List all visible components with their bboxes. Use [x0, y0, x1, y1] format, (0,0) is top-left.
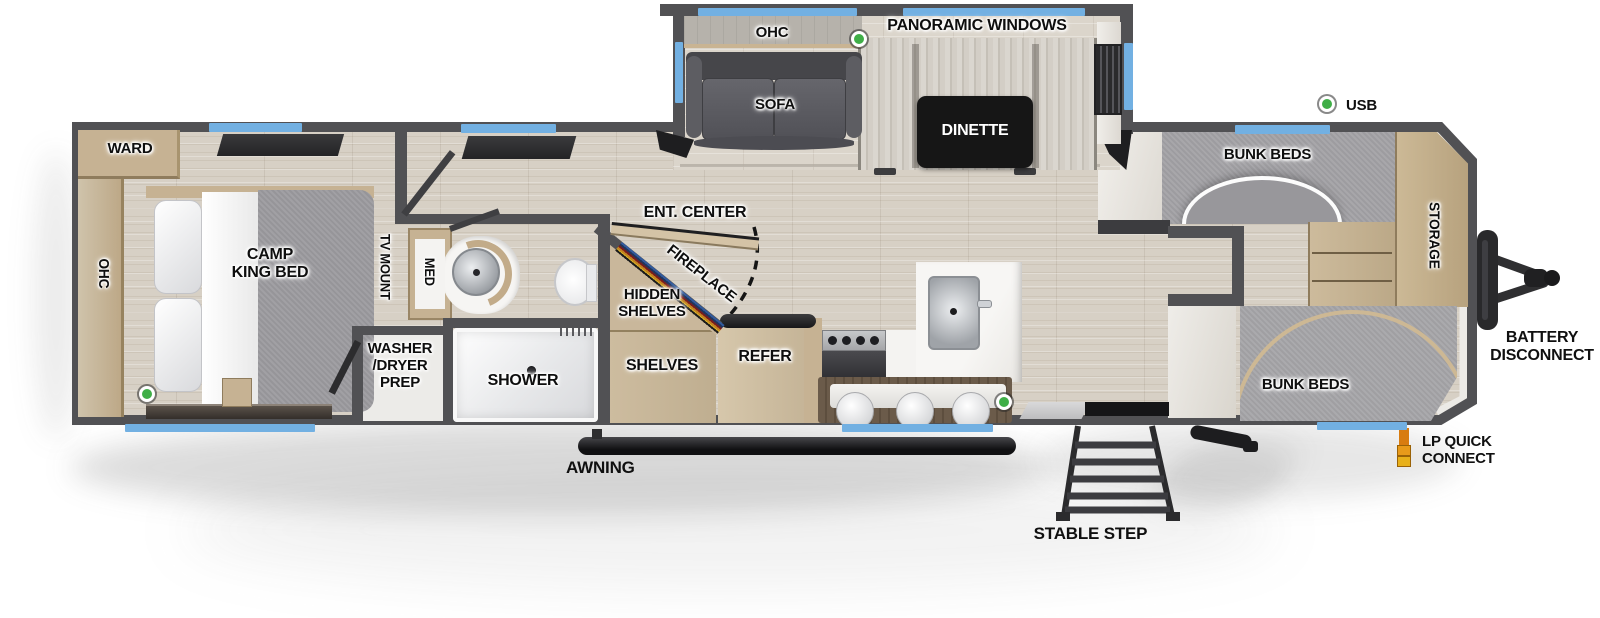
dresser-drawer-line: [1312, 252, 1392, 254]
dresser-drawer-line: [1312, 280, 1392, 282]
label-ohc-bedroom-text: OHC: [94, 258, 111, 288]
shower-head-icon: [560, 328, 592, 336]
nightstand: [222, 378, 252, 407]
label-ohc-bedroom: OHC: [84, 240, 120, 306]
front-closet-edge: [1098, 220, 1170, 234]
bunk-lower-wall: [1168, 306, 1236, 418]
hitch-a-frame: [1477, 230, 1560, 330]
window: [1317, 422, 1407, 430]
label-stable-step: STABLE STEP: [1018, 524, 1163, 543]
awning-bracket: [592, 429, 602, 439]
label-refer: REFER: [715, 348, 815, 366]
window: [675, 42, 683, 103]
label-shelves: SHELVES: [612, 357, 712, 375]
window: [842, 424, 993, 432]
bedroom-partition-wall: [395, 127, 407, 218]
label-shower: SHOWER: [478, 372, 568, 390]
stabilizer-foot-pad: [1243, 441, 1258, 452]
refrigerator-top-trim: [720, 314, 816, 328]
shadow-left-wall: [34, 150, 78, 440]
entry-threshold: [1085, 402, 1169, 416]
label-dinette: DINETTE: [920, 122, 1030, 140]
label-bunk-beds-top: BUNK BEDS: [1205, 147, 1330, 164]
refrigerator: [718, 326, 816, 423]
label-battery-disconnect: BATTERY DISCONNECT: [1478, 329, 1600, 365]
sink-drain: [473, 269, 480, 276]
lp-quick-connect-icon-tip: [1397, 456, 1411, 467]
sofa-arm: [846, 56, 862, 138]
label-storage-text: STORAGE: [1425, 202, 1442, 269]
bench-foot: [1014, 168, 1036, 175]
shower-top-wall: [443, 318, 610, 328]
floorplan-canvas: PANORAMIC WINDOWS OHC SOFA DINETTE USB W…: [0, 0, 1600, 618]
label-usb: USB: [1346, 98, 1406, 115]
lp-quick-connect-icon-mid: [1397, 445, 1411, 456]
label-med-text: MED: [421, 258, 437, 286]
window: [125, 424, 315, 432]
label-sofa: SOFA: [740, 97, 810, 114]
bunk-doorway-bottom: [1168, 294, 1244, 306]
window: [461, 124, 556, 133]
label-tv-mount: TV MOUNT: [364, 222, 406, 312]
bunk-lower: [1240, 306, 1457, 421]
bunk-dresser: [1308, 222, 1396, 306]
window: [209, 123, 302, 132]
faucet-icon: [977, 300, 992, 308]
bed-pillow: [154, 200, 202, 294]
window: [903, 8, 1085, 16]
led-indicator-slide: [851, 31, 867, 47]
label-med: MED: [411, 246, 447, 298]
label-bunk-beds-bottom: BUNK BEDS: [1243, 377, 1368, 394]
burner: [842, 336, 851, 345]
ceiling-vent: [462, 136, 577, 159]
label-ward: WARD: [95, 141, 165, 158]
label-lp-quick-connect: LP QUICK CONNECT: [1422, 434, 1514, 468]
counter-run: [886, 330, 918, 380]
label-washer-dryer-prep: WASHER /DRYER PREP: [358, 341, 442, 391]
usb-indicator: [1319, 96, 1335, 112]
bench-foot: [874, 168, 896, 175]
label-camp-king-bed: CAMP KING BED: [213, 246, 327, 282]
label-panoramic-windows: PANORAMIC WINDOWS: [877, 17, 1077, 35]
label-tv-mount-text: TV MOUNT: [377, 234, 393, 300]
label-storage: STORAGE: [1414, 193, 1452, 277]
burner: [856, 336, 865, 345]
window: [698, 8, 857, 16]
sink-drain: [950, 308, 957, 315]
bathroom-top-wall: [395, 214, 600, 224]
label-hidden-shelves: HIDDEN SHELVES: [604, 287, 700, 321]
led-indicator-entry: [996, 394, 1012, 410]
awning-tube: [578, 437, 1016, 455]
bed-pillow: [154, 298, 202, 392]
wd-closet-top-wall: [352, 326, 448, 335]
sofa-back: [686, 52, 862, 80]
blinds-window-icon: [1094, 44, 1122, 115]
entry-landing: [1019, 402, 1090, 419]
stove-body: [822, 351, 886, 380]
toilet-tank: [586, 264, 597, 302]
label-ent-center: ENT. CENTER: [639, 204, 751, 222]
ceiling-vent: [217, 134, 344, 156]
window: [1235, 125, 1330, 134]
burner: [870, 336, 879, 345]
burner: [828, 336, 837, 345]
label-awning: AWNING: [566, 458, 656, 477]
sofa-arm: [686, 56, 702, 138]
shelves-cabinet: [610, 330, 716, 423]
sofa-front-lip: [694, 136, 854, 150]
led-indicator-bedroom: [139, 386, 155, 402]
dinette-bench-shadow: [1032, 44, 1039, 168]
label-ohc-slide: OHC: [737, 25, 807, 42]
window: [1124, 43, 1133, 110]
lp-quick-connect-icon: [1399, 428, 1409, 445]
